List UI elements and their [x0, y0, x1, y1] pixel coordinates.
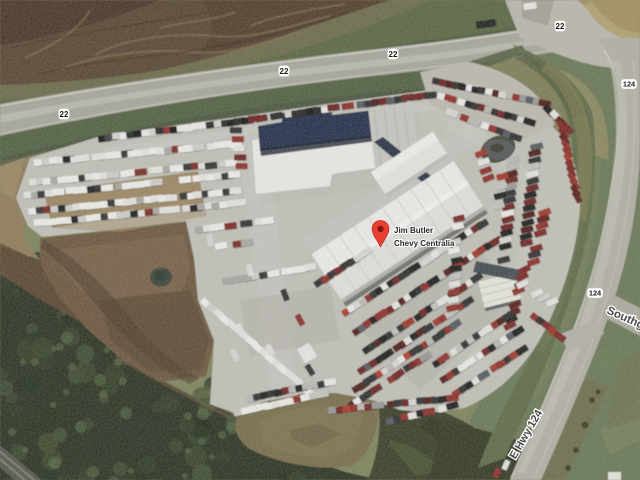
svg-text:22: 22 — [389, 50, 398, 59]
svg-text:22: 22 — [280, 67, 289, 76]
svg-text:22: 22 — [60, 110, 69, 119]
svg-text:124: 124 — [623, 80, 636, 89]
svg-text:Jim Butler: Jim Butler — [394, 226, 433, 235]
svg-text:Chevy Centralia: Chevy Centralia — [394, 239, 455, 248]
svg-text:22: 22 — [556, 22, 565, 31]
svg-text:124: 124 — [589, 289, 602, 298]
